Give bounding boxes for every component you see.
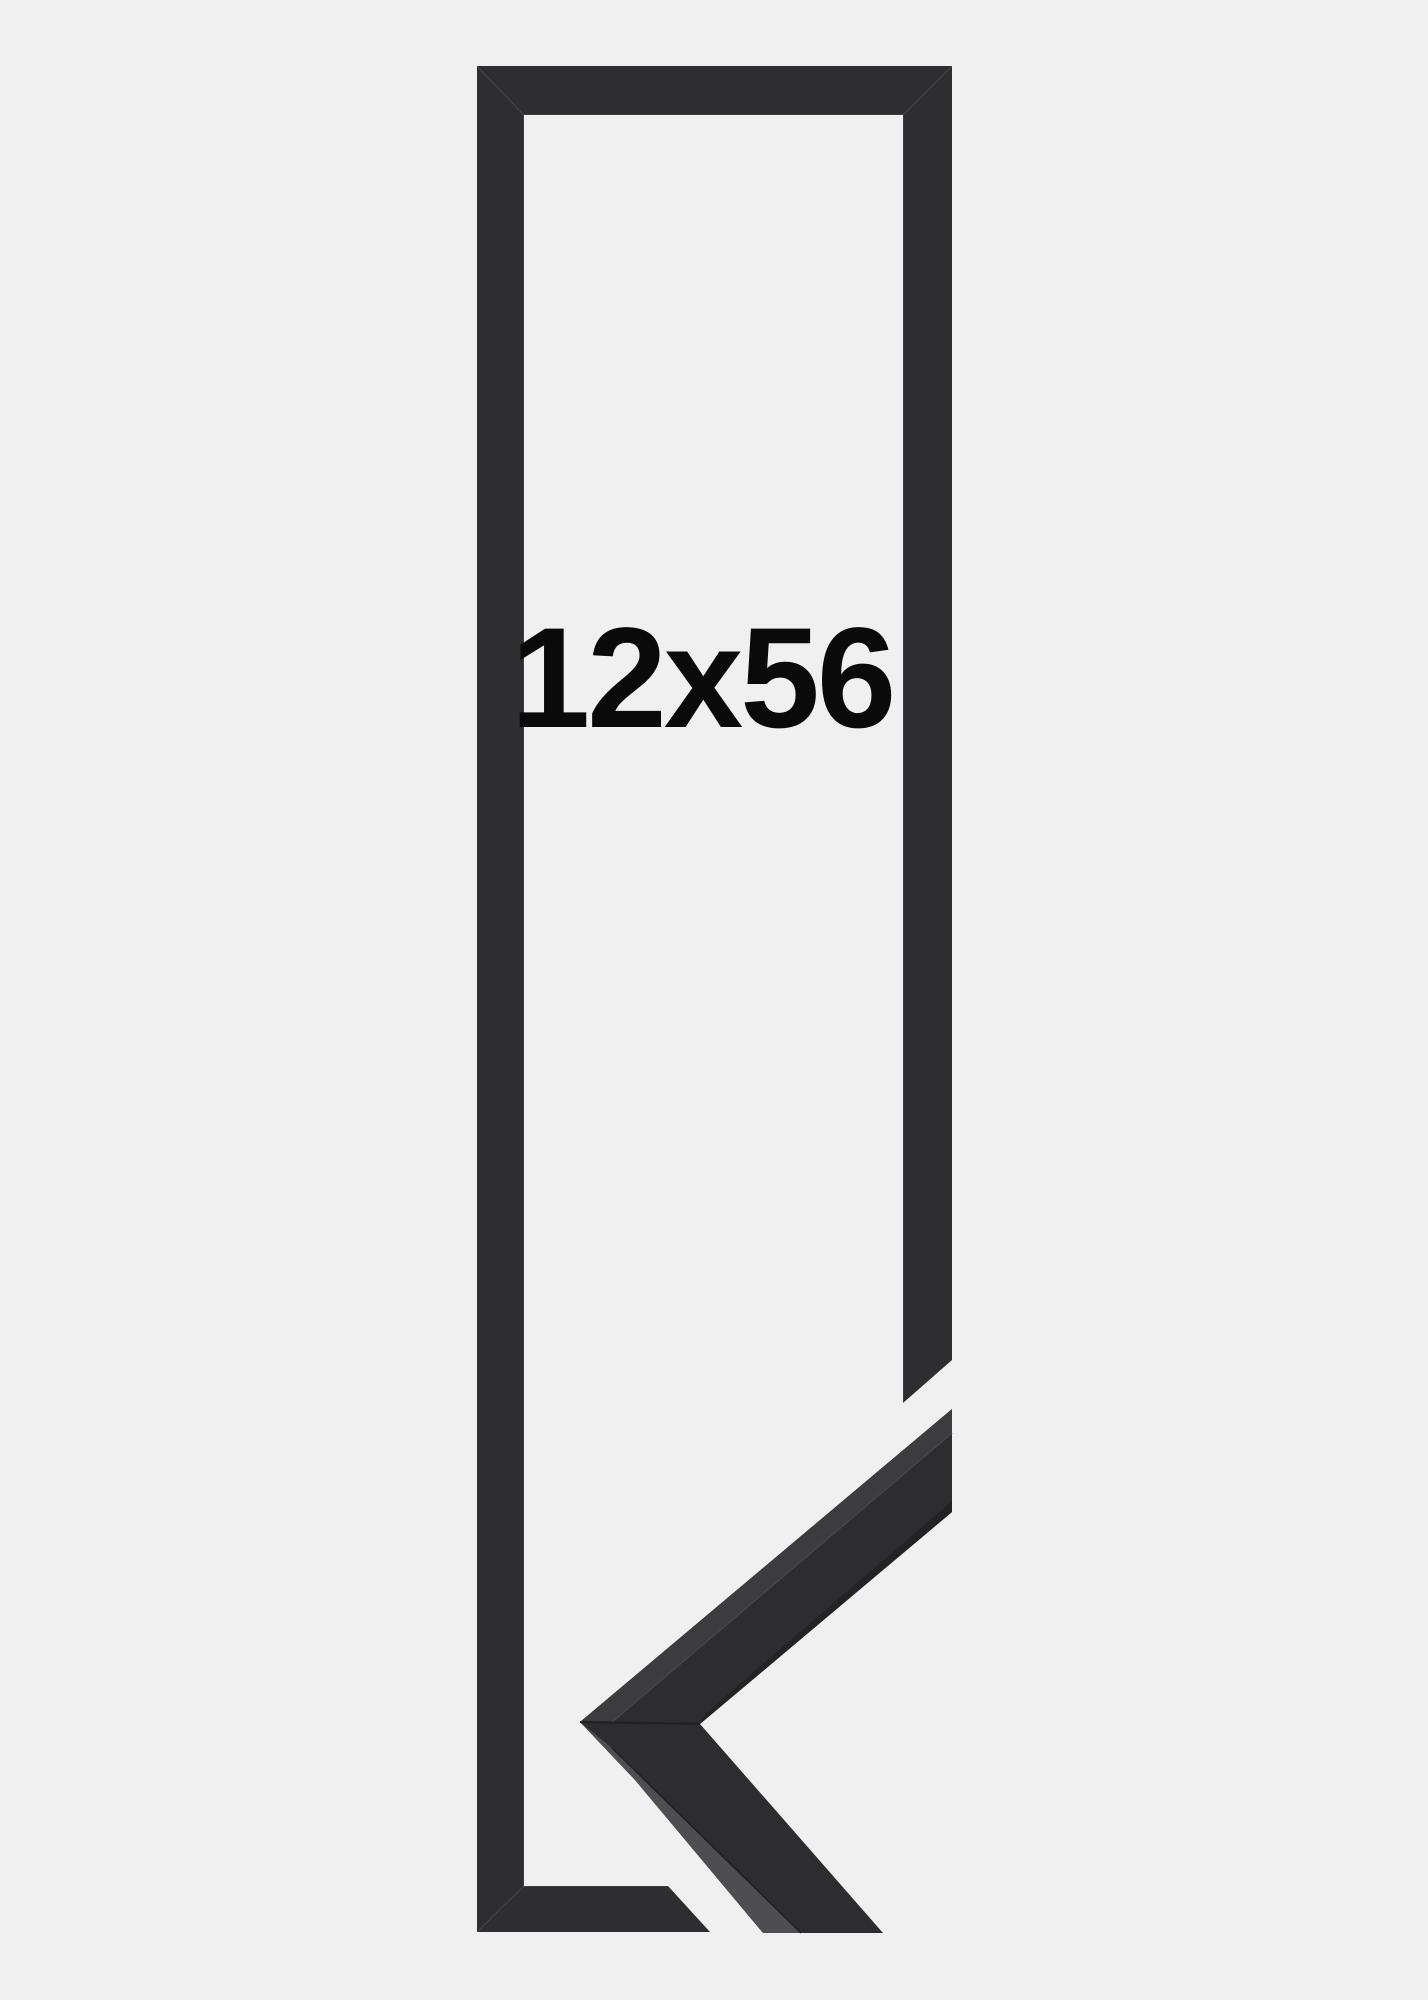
corner-sample-top-face	[580, 1409, 952, 1722]
size-label: 12x56	[0, 604, 1404, 754]
corner-sample-arris-highlight	[612, 1433, 952, 1722]
corner-sample-front-face	[580, 1409, 952, 1933]
frame-graphic	[0, 0, 1428, 2000]
product-image: 12x56	[0, 0, 1428, 2000]
